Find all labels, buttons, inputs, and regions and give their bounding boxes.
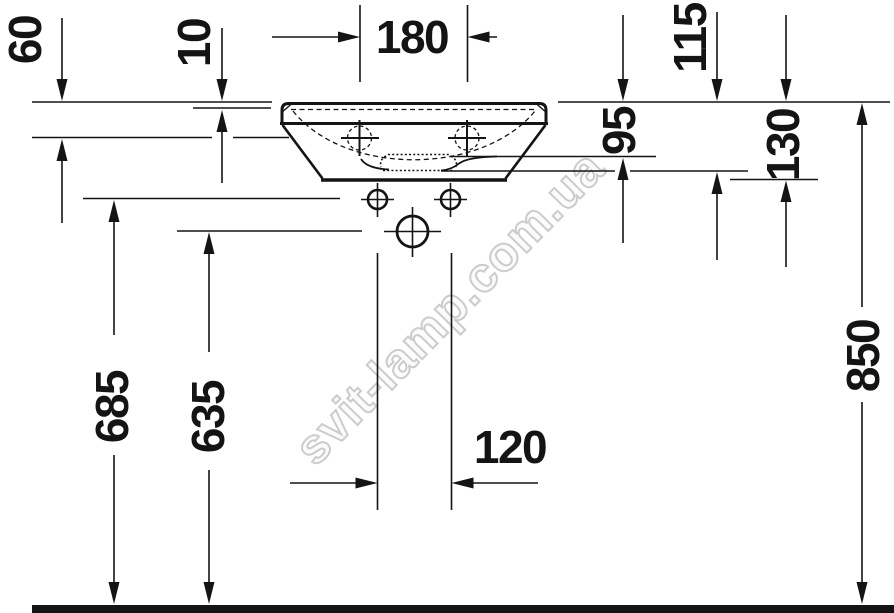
technical-drawing-page: svit-lamp.com.ua bbox=[0, 0, 894, 613]
dimension-635: 635 bbox=[182, 232, 234, 604]
bowl-dashed-curve bbox=[293, 111, 535, 160]
arrow-up bbox=[57, 139, 68, 161]
rim-top-edge bbox=[282, 104, 546, 124]
dim-label-95: 95 bbox=[593, 106, 645, 155]
arrow-down bbox=[217, 79, 228, 101]
dim-label-130: 130 bbox=[757, 109, 809, 181]
fixing-hole-left-crosshair bbox=[361, 183, 394, 217]
drain-hole-crosshair bbox=[384, 207, 441, 257]
dimension-850: 850 bbox=[837, 103, 889, 604]
dimension-115: 115 bbox=[664, 2, 723, 260]
dimension-180: 180 bbox=[272, 5, 497, 82]
arrow-down bbox=[204, 582, 215, 604]
fixing-hole-right-crosshair bbox=[434, 183, 467, 217]
washbasin-outline bbox=[280, 104, 548, 181]
tap-hole-left bbox=[341, 120, 379, 156]
dim-label-635: 635 bbox=[182, 380, 234, 453]
arrow-right bbox=[338, 32, 360, 43]
dim-label-180: 180 bbox=[376, 11, 448, 63]
tap-hole-crosshair bbox=[341, 120, 379, 156]
arrow-down bbox=[857, 582, 868, 604]
side-slope-left bbox=[283, 125, 323, 179]
arrow-up bbox=[109, 200, 120, 222]
arrow-up bbox=[857, 103, 868, 125]
dim-label-120: 120 bbox=[474, 421, 546, 473]
drain-recess-solid-right bbox=[441, 157, 497, 171]
dim-label-60: 60 bbox=[0, 16, 51, 64]
tap-hole-crosshair bbox=[448, 120, 486, 156]
arrow-up bbox=[781, 181, 792, 203]
arrow-down bbox=[618, 79, 629, 101]
dimension-60: 60 bbox=[0, 16, 68, 223]
arrow-down bbox=[712, 79, 723, 101]
arrow-up bbox=[618, 158, 629, 180]
dim-label-115: 115 bbox=[664, 2, 716, 73]
arrow-down bbox=[57, 79, 68, 101]
dimension-685: 685 bbox=[86, 200, 138, 604]
fixing-holes bbox=[361, 183, 467, 217]
arrow-up bbox=[712, 172, 723, 194]
arrow-down bbox=[109, 582, 120, 604]
arrow-right bbox=[356, 478, 378, 489]
drain-hole bbox=[384, 207, 441, 257]
tap-hole-right bbox=[448, 120, 486, 156]
floor-line bbox=[32, 605, 894, 613]
dimension-120: 120 bbox=[290, 253, 546, 510]
dim-label-10: 10 bbox=[168, 19, 220, 67]
arrow-down bbox=[781, 79, 792, 101]
arrow-up bbox=[204, 232, 215, 254]
washbasin-dimension-drawing: svit-lamp.com.ua bbox=[0, 0, 894, 613]
dimension-130: 130 bbox=[757, 15, 809, 267]
dim-label-685: 685 bbox=[86, 370, 138, 443]
dimension-95: 95 bbox=[593, 15, 645, 243]
dim-label-850: 850 bbox=[837, 320, 889, 392]
drain-recess-solid-left bbox=[361, 159, 389, 170]
dimension-10: 10 bbox=[168, 19, 228, 183]
arrow-left bbox=[452, 478, 474, 489]
arrow-left bbox=[468, 32, 490, 43]
arrow-up bbox=[217, 110, 228, 132]
